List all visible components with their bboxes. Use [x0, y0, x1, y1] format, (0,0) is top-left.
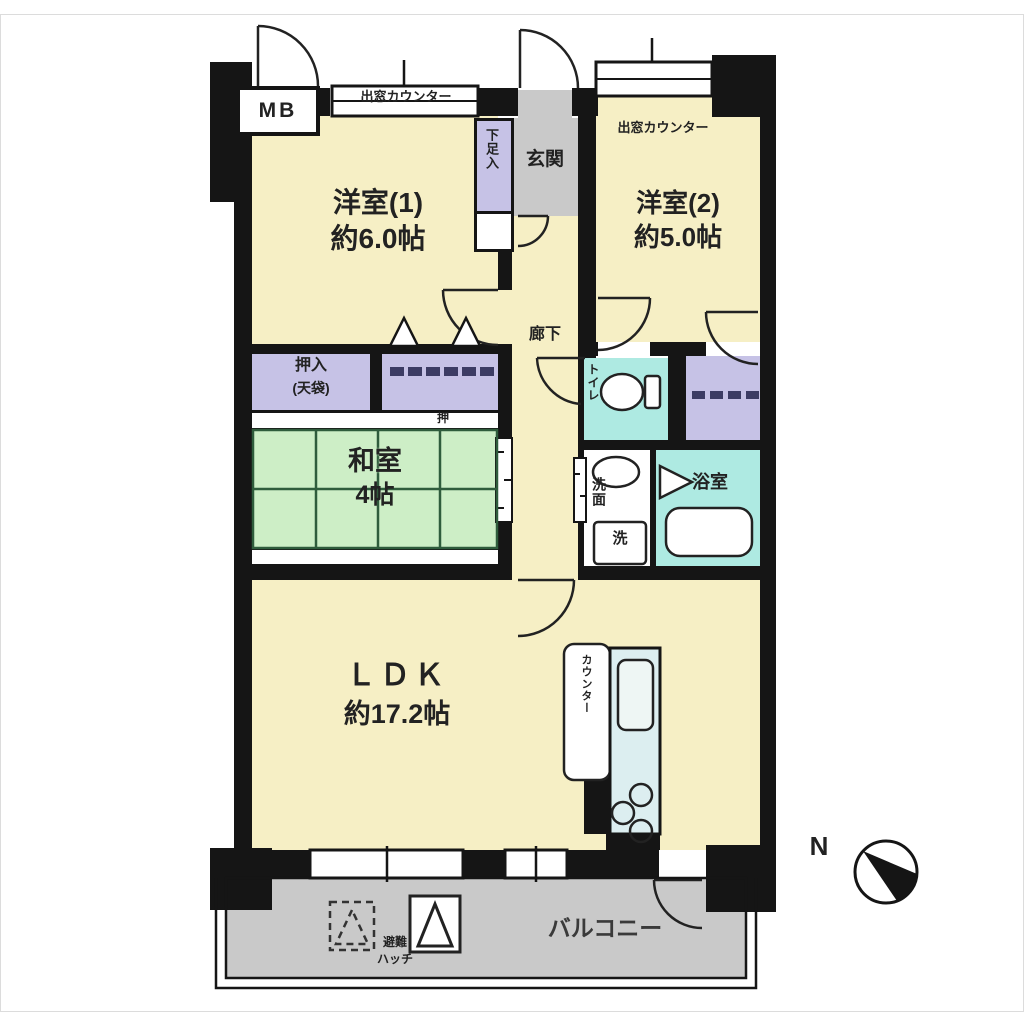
bay-counter1-label: 出窓カウンター: [334, 90, 478, 104]
closet-marker-label: 押: [432, 412, 454, 425]
kitchen-counter-label: カウンター: [580, 654, 591, 774]
washer-label: 洗: [594, 531, 646, 547]
floorplan-image: MB: [0, 0, 1024, 1024]
western1-name: 洋室(1): [258, 188, 498, 217]
closet-folding-door-marks: [390, 318, 480, 346]
bathtub-fixture: [666, 508, 752, 556]
front-door: [520, 30, 578, 88]
japanese-room-sliding-door: [496, 438, 512, 522]
bay-window-1: [332, 60, 478, 116]
escape-hatch-label-line1: 避難: [362, 936, 428, 949]
western2-name: 洋室(2): [596, 190, 760, 217]
western2-closet-dashes: [692, 391, 759, 399]
toilet-fixture: [601, 374, 660, 410]
oshiire-label-line2: (天袋): [252, 381, 370, 396]
ldk-name: ＬＤＫ: [252, 660, 542, 692]
ldk-door: [518, 580, 574, 636]
entrance-label: 玄関: [512, 150, 578, 170]
western2-closet-door: [706, 312, 758, 364]
hallway-label: 廊下: [512, 327, 578, 344]
kitchen-sink: [618, 660, 653, 730]
ldk-window-1: [310, 846, 463, 882]
western2-closet-threshold: [706, 342, 756, 356]
compass-north-label: N: [804, 833, 834, 860]
western2-size: 約5.0帖: [596, 224, 760, 251]
bathroom-label: 浴室: [668, 473, 752, 492]
japanese-room-size: 4帖: [252, 482, 498, 508]
toilet-door: [537, 358, 585, 404]
balcony-door-threshold: [659, 850, 706, 878]
entrance-hall-door: [518, 216, 548, 246]
oshiire-label-line1: 押入: [252, 358, 370, 375]
escape-hatch-label-line2: ハッチ: [358, 953, 432, 966]
western1-size: 約6.0帖: [258, 224, 498, 253]
futon-closet-dashes: [390, 367, 494, 376]
ldk-size: 約17.2帖: [252, 700, 542, 728]
washroom-sliding-door: [574, 458, 586, 522]
washroom-label: 洗面: [592, 477, 606, 523]
japanese-room-name: 和室: [252, 447, 498, 475]
balcony-label: バルコニー: [490, 916, 720, 940]
ldk-window-2: [505, 846, 567, 882]
bay-counter2-label: 出窓カウンター: [598, 121, 728, 135]
compass-icon: [855, 841, 917, 903]
meter-box-door: [258, 26, 318, 86]
bay-window-2: [596, 38, 712, 96]
toilet-label: トイレ: [587, 363, 599, 439]
